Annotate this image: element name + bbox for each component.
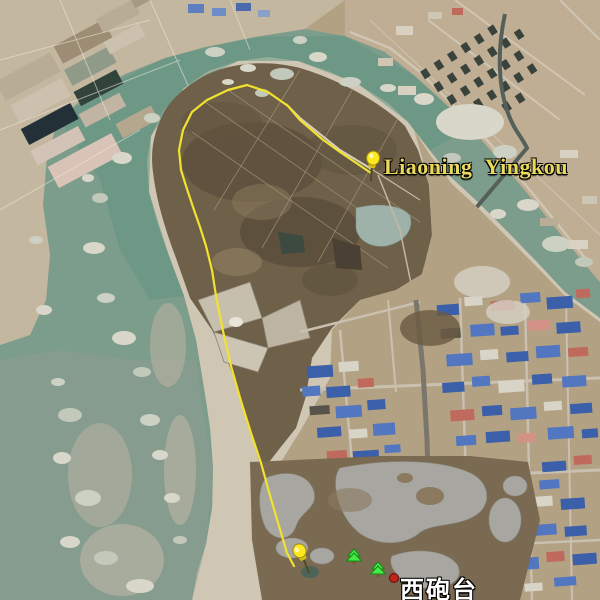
poi-label[interactable]: 西砲台 [400,570,478,600]
poi-dot-icon[interactable] [390,574,399,583]
placemark-label[interactable]: Liaoning Yingkou [384,154,568,180]
satellite-imagery-canvas[interactable] [0,0,600,600]
satellite-map-view[interactable]: Liaoning Yingkou 西砲台 [0,0,600,600]
